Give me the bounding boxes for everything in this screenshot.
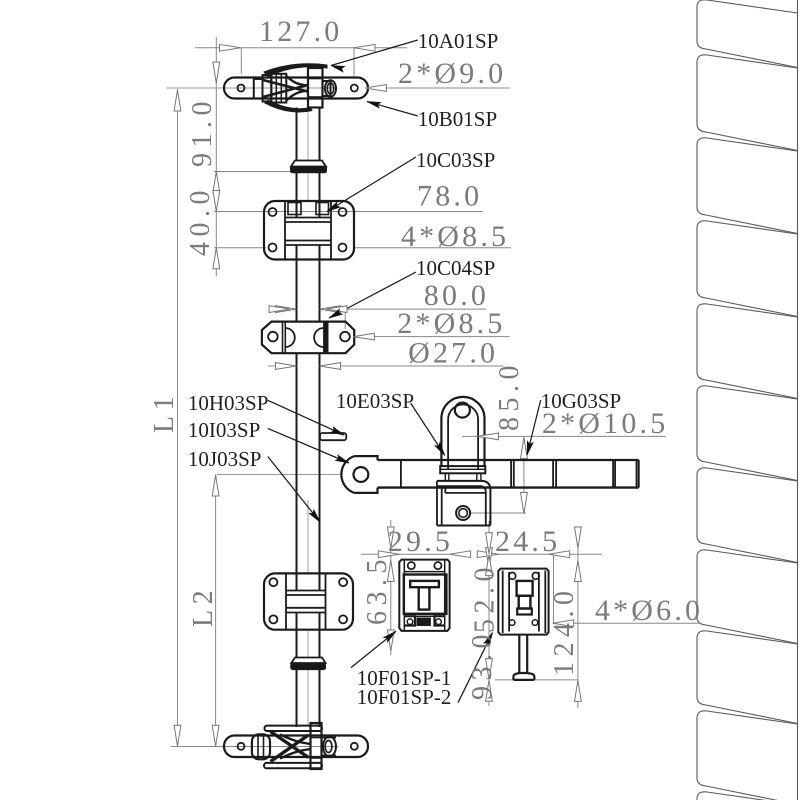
svg-text:Ø27.0: Ø27.0 — [408, 337, 498, 370]
svg-text:85.0: 85.0 — [494, 360, 525, 431]
svg-text:L1: L1 — [149, 391, 180, 433]
svg-text:10F01SP-2: 10F01SP-2 — [357, 685, 452, 709]
svg-text:52.0: 52.0 — [470, 562, 501, 633]
svg-text:2*Ø8.5: 2*Ø8.5 — [397, 307, 505, 340]
svg-text:91.0: 91.0 — [187, 96, 218, 167]
svg-text:4*Ø6.0: 4*Ø6.0 — [595, 594, 703, 627]
svg-text:2*Ø10.5: 2*Ø10.5 — [542, 407, 669, 440]
svg-text:10H03SP: 10H03SP — [188, 391, 269, 415]
svg-text:L2: L2 — [188, 585, 219, 627]
svg-text:63.5: 63.5 — [362, 554, 393, 625]
svg-text:127.0: 127.0 — [259, 15, 343, 48]
svg-text:29.5: 29.5 — [388, 525, 453, 558]
svg-text:40.0: 40.0 — [185, 185, 216, 256]
svg-text:10B01SP: 10B01SP — [418, 107, 497, 131]
svg-text:10C04SP: 10C04SP — [416, 256, 495, 280]
svg-text:93.0: 93.0 — [467, 629, 498, 700]
svg-text:10J03SP: 10J03SP — [188, 447, 262, 471]
svg-text:124.0: 124.0 — [549, 586, 580, 677]
svg-text:10E03SP: 10E03SP — [336, 389, 414, 413]
svg-text:4*Ø8.5: 4*Ø8.5 — [401, 220, 509, 253]
svg-text:24.5: 24.5 — [495, 525, 560, 558]
svg-text:2*Ø9.0: 2*Ø9.0 — [398, 57, 506, 90]
svg-text:10I03SP: 10I03SP — [188, 418, 260, 442]
svg-text:10C03SP: 10C03SP — [416, 148, 495, 172]
svg-text:78.0: 78.0 — [417, 180, 482, 213]
svg-text:10A01SP: 10A01SP — [418, 29, 499, 53]
